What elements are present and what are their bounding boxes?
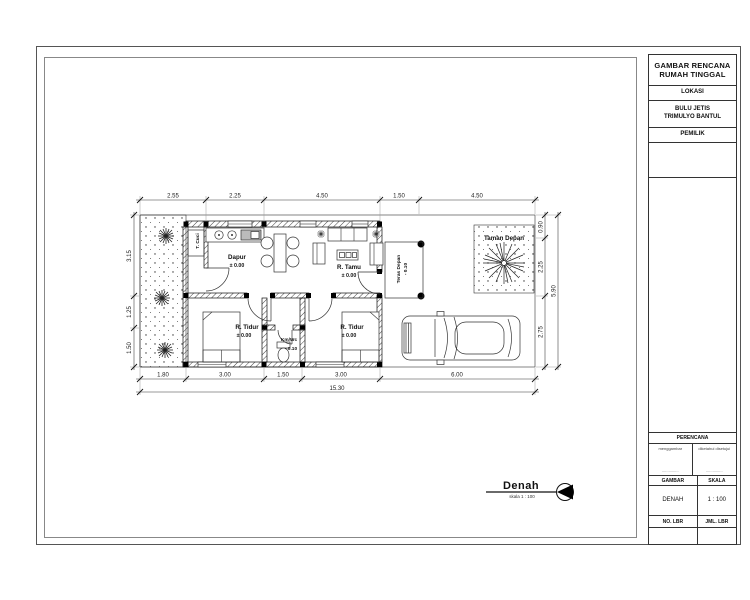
lokasi-line1: BULU JETIS (675, 106, 710, 114)
armchair (313, 243, 325, 264)
title-block: GAMBAR RENCANA RUMAH TINGGAL LOKASI BULU… (648, 54, 737, 545)
gambar-skala-values: DENAH 1 : 100 (649, 486, 736, 516)
project-title: GAMBAR RENCANA RUMAH TINGGAL (649, 55, 736, 86)
level-tidur-2: ± 0.00 (342, 333, 357, 339)
jml-lbr-label: JML. LBR (698, 516, 736, 527)
car (402, 312, 520, 365)
perencana-label: PERENCANA (649, 433, 736, 444)
dim-right-1: 0.90 (539, 221, 545, 233)
gambar-value: DENAH (649, 486, 698, 515)
car-mirror (437, 312, 444, 317)
dim-bottom-1: 1.80 (157, 373, 169, 379)
level-kmwc: - 0.10 (285, 346, 298, 352)
notes-box (649, 178, 736, 433)
dim-top-1: 2.55 (167, 194, 179, 200)
room-label-taman: Taman Depan (484, 235, 524, 242)
room-label-teras: Teras Depan (396, 255, 402, 284)
plant-icon (372, 230, 380, 238)
dining-set (261, 234, 299, 272)
room-label-kmwc: Km/Wc (281, 337, 298, 343)
room-label-tidur-1: R. Tidur (235, 324, 259, 331)
lokasi-value: BULU JETIS TRIMULYO BANTUL (649, 101, 736, 128)
drawing-scale-note: skala 1 : 100 (509, 494, 535, 499)
signature-cell-right: diketahui disetujui ............... (693, 444, 737, 475)
garden-left (140, 215, 186, 367)
dim-right-total: 5.90 (552, 285, 558, 297)
signature-header-left: menggambar (658, 446, 682, 451)
dim-top-5: 4.50 (471, 194, 483, 200)
project-title-line2: RUMAH TINGGAL (659, 70, 725, 79)
jml-lbr-value (698, 528, 736, 544)
skala-value: 1 : 100 (698, 486, 736, 515)
tree-icon (483, 242, 525, 284)
sofa (328, 228, 367, 241)
terrace-column (418, 241, 425, 248)
shrub-icon (154, 290, 170, 306)
pemilik-value-box (649, 143, 736, 178)
door-arc (309, 298, 332, 321)
dim-top-4: 1.50 (393, 194, 405, 200)
signature-dots-left: ............... (662, 468, 679, 473)
level-dapur: ± 0.00 (230, 263, 245, 269)
no-lbr-label: NO. LBR (649, 516, 698, 527)
dim-left-1: 3.15 (127, 250, 133, 262)
room-label-tidur-2: R. Tidur (340, 324, 364, 331)
plant-icon (317, 230, 325, 238)
dining-chair (287, 237, 299, 249)
drawing-title: Denah (503, 480, 539, 492)
dim-bottom-3: 1.50 (277, 373, 289, 379)
dim-bottom-4: 3.00 (335, 373, 347, 379)
door-arc (358, 272, 380, 294)
no-lbr-value (649, 528, 698, 544)
sheet-number-header: NO. LBR JML. LBR (649, 516, 736, 528)
dim-top-3: 4.50 (316, 194, 328, 200)
dining-chair (261, 237, 273, 249)
car-mirror (437, 360, 444, 365)
dim-left-3: 1.50 (127, 342, 133, 354)
level-teras: - 0.10 (403, 263, 409, 276)
shrub-icon (157, 342, 173, 358)
dim-bottom-total: 15.30 (329, 386, 345, 392)
level-tidur-1: ± 0.00 (237, 333, 252, 339)
signature-cell-left: menggambar ............... (649, 444, 693, 475)
dining-chair (287, 255, 299, 267)
dim-right-2: 2.25 (539, 261, 545, 273)
terrace-column (418, 293, 425, 300)
perencana-signatures: menggambar ............... diketahui dis… (649, 444, 736, 476)
gambar-skala-header: GAMBAR SKALA (649, 476, 736, 486)
door-arc (248, 298, 271, 321)
dim-top-2: 2.25 (229, 194, 241, 200)
lokasi-line2: TRIMULYO BANTUL (664, 114, 721, 122)
lokasi-label: LOKASI (649, 86, 736, 101)
drawing-sheet: Dapur ± 0.00 R. Tamu ± 0.00 R. Tidur ± 0… (0, 0, 750, 600)
level-tamu: ± 0.00 (342, 273, 357, 279)
toilet-icon (277, 342, 290, 362)
dim-left-2: 1.25 (127, 306, 133, 318)
armchair (370, 243, 383, 265)
pemilik-label: PEMILIK (649, 128, 736, 143)
sheet-number-values (649, 528, 736, 544)
project-title-line1: GAMBAR RENCANA (654, 61, 730, 70)
dining-chair (261, 255, 273, 267)
signature-dots-right: ............... (706, 468, 723, 473)
room-label-tamu: R. Tamu (337, 264, 361, 271)
living-room-furniture (313, 228, 383, 265)
shrub-icon (158, 228, 174, 244)
skala-label: SKALA (698, 476, 736, 485)
room-label-tcuci: T. Cuci (195, 233, 201, 248)
door-arc (206, 268, 229, 291)
signature-header-right: diketahui disetujui (698, 446, 730, 451)
room-label-dapur: Dapur (228, 254, 246, 261)
dim-right-3: 2.75 (539, 326, 545, 338)
gambar-label: GAMBAR (649, 476, 698, 485)
drawing-title-group: Denah skala 1 : 100 (486, 480, 574, 501)
coffee-table (337, 250, 358, 260)
dim-bottom-5: 6.00 (451, 373, 463, 379)
dim-bottom-2: 3.00 (219, 373, 231, 379)
floor-plan-drawing: Dapur ± 0.00 R. Tamu ± 0.00 R. Tidur ± 0… (44, 57, 637, 538)
dining-table (274, 234, 286, 272)
